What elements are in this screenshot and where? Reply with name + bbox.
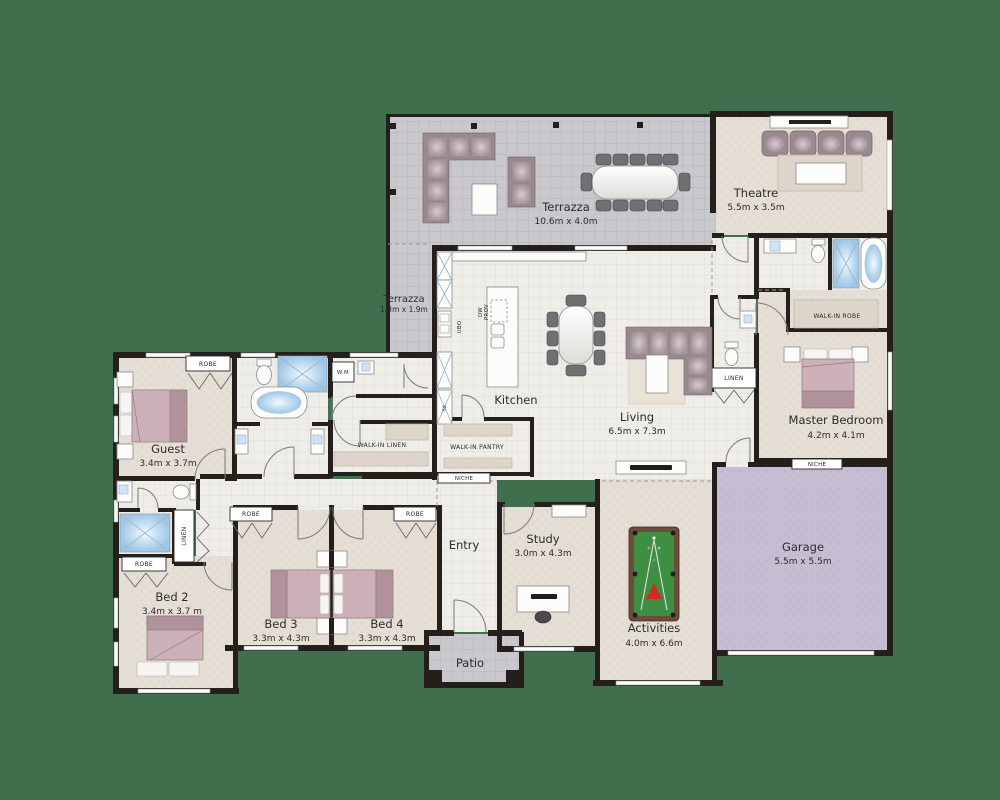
toilet: [812, 246, 825, 263]
window: [114, 598, 118, 628]
label-walkin-pantry: WALK-IN PANTRY: [450, 444, 504, 451]
window: [348, 646, 402, 650]
pillow: [334, 595, 343, 614]
label-robe-bed3: ROBE: [242, 511, 260, 518]
window: [241, 353, 275, 357]
pillow: [829, 349, 852, 359]
sink: [491, 337, 504, 348]
nook-floor: [196, 510, 233, 564]
window: [458, 246, 512, 250]
bathtub-water: [257, 392, 301, 414]
pillow: [804, 349, 827, 359]
label-theatre-dims: 5.5m x 3.5m: [727, 203, 784, 213]
label-entry-name: Entry: [449, 538, 480, 552]
label-bed3-dims: 3.3m x 4.3m: [252, 634, 309, 644]
label-living-dims: 6.5m x 7.3m: [608, 427, 665, 437]
label-living-name: Living: [620, 410, 654, 424]
office-chair: [535, 611, 551, 623]
master-bed: [802, 359, 854, 393]
bedside-table: [117, 444, 133, 459]
bathtub-water: [865, 245, 882, 283]
window: [114, 500, 118, 522]
label-robe-guest: ROBE: [199, 361, 217, 368]
label-garage-name: Garage: [782, 540, 824, 554]
bedside-table: [117, 372, 133, 387]
label-walkin-linen: WALK-IN LINEN: [358, 442, 406, 449]
label-patio-name: Patio: [456, 656, 484, 670]
toilet-tank: [812, 239, 825, 245]
floorplan-canvas: Terrazza 10.6m x 4.0m Terrazza 1.3m x 1.…: [0, 0, 1000, 800]
label-terrazza2-name: Terrazza: [382, 294, 424, 305]
screen-bar: [789, 120, 831, 124]
pillow: [320, 574, 329, 593]
label-walkin-robe: WALK-IN ROBE: [813, 313, 860, 320]
coffee-table: [646, 355, 668, 393]
window: [244, 646, 298, 650]
garage-door: [728, 651, 874, 655]
label-bed2-dims: 3.4m x 3.7 m: [142, 607, 202, 617]
kitchen-bench: [452, 252, 586, 261]
toilet: [257, 366, 272, 385]
pool-table: [629, 527, 679, 621]
outdoor-dining-table: [592, 166, 678, 199]
label-bed4-dims: 3.3m x 4.3m: [358, 634, 415, 644]
coffee-table: [472, 184, 497, 215]
window: [350, 353, 398, 357]
pillow: [320, 595, 329, 614]
label-theatre-name: Theatre: [733, 186, 779, 200]
bedside-table: [852, 347, 868, 362]
guest-bed: [132, 390, 172, 442]
window: [114, 642, 118, 666]
label-guest-name: Guest: [151, 442, 185, 456]
label-study-name: Study: [526, 532, 559, 546]
label-prov: PROV: [484, 304, 490, 320]
label-study-dims: 3.0m x 4.3m: [514, 549, 571, 559]
label-ubo: UBO: [457, 321, 463, 334]
sink: [491, 324, 504, 335]
label-master-name: Master Bedroom: [789, 413, 884, 427]
label-niche-master: NICHE: [808, 462, 827, 468]
dining-table: [559, 306, 593, 364]
label-bed4-name: Bed 4: [370, 617, 403, 631]
sliding-door: [616, 681, 700, 685]
label-linen-bed2: LINEN: [181, 526, 188, 545]
label-robe-bed2: ROBE: [135, 561, 153, 568]
tv: [630, 465, 672, 470]
study-shelf: [552, 505, 586, 517]
pillow: [334, 574, 343, 593]
label-bed3-name: Bed 3: [264, 617, 297, 631]
toilet-tank: [190, 484, 196, 500]
window: [146, 353, 190, 357]
pillow: [169, 662, 199, 676]
label-kitchen-name: Kitchen: [494, 393, 537, 407]
label-robe-bed4: ROBE: [406, 511, 424, 518]
window: [887, 140, 892, 210]
entry-floor: [437, 479, 497, 632]
pillow: [137, 662, 167, 676]
label-linen-powder: LINEN: [724, 375, 743, 382]
pillow: [120, 415, 132, 436]
study-floor: [502, 507, 595, 646]
label-niche-pantry: NICHE: [455, 476, 474, 482]
window: [575, 246, 627, 250]
label-bed2-name: Bed 2: [155, 590, 188, 604]
label-washing-machine: W.M: [337, 370, 349, 376]
toilet-tank: [257, 359, 271, 366]
label-master-dims: 4.2m x 4.1m: [807, 431, 864, 441]
bedside-table: [784, 347, 800, 362]
pillow: [120, 392, 132, 413]
window: [138, 689, 210, 693]
label-fridge: fd: [442, 405, 448, 411]
label-terrazza2-dims: 1.3m x 1.9m: [380, 305, 428, 314]
window: [888, 352, 892, 410]
window: [114, 416, 118, 442]
toilet: [725, 349, 738, 366]
label-terrazza-dims: 10.6m x 4.0m: [535, 217, 598, 227]
monitor: [531, 594, 557, 599]
label-guest-dims: 3.4m x 3.7m: [139, 459, 196, 469]
theatre-table: [796, 163, 846, 184]
floorplan-svg: Terrazza 10.6m x 4.0m Terrazza 1.3m x 1.…: [0, 0, 1000, 800]
label-garage-dims: 5.5m x 5.5m: [774, 557, 831, 567]
label-terrazza-name: Terrazza: [541, 200, 590, 214]
window: [514, 647, 574, 651]
label-activities-name: Activities: [628, 621, 680, 635]
label-activities-dims: 4.0m x 6.6m: [625, 639, 682, 649]
toilet-tank: [725, 342, 738, 348]
toilet: [173, 485, 189, 499]
